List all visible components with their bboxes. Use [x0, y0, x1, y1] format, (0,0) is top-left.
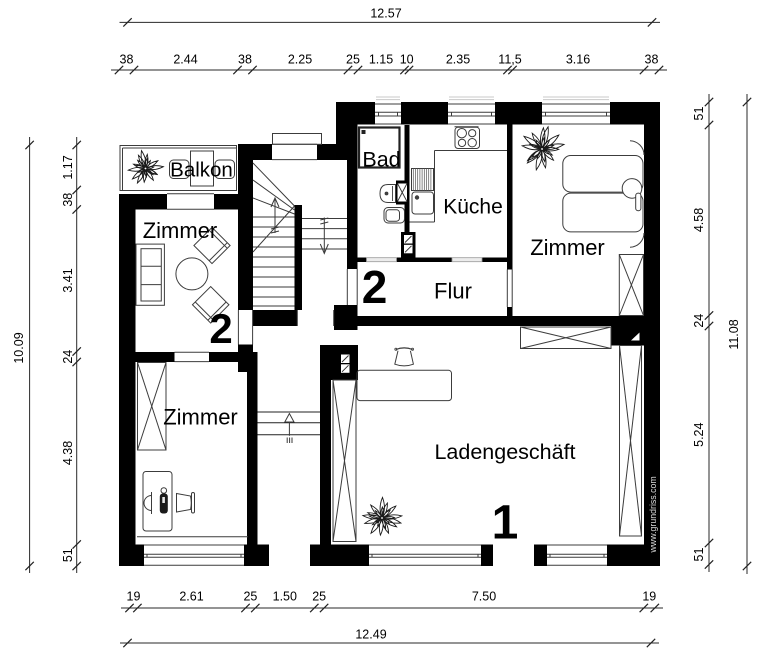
svg-text:11,5: 11,5 — [498, 53, 521, 67]
svg-text:2: 2 — [209, 305, 232, 352]
svg-text:51: 51 — [692, 548, 706, 562]
svg-text:2.61: 2.61 — [179, 590, 203, 604]
svg-text:25: 25 — [346, 53, 360, 67]
svg-text:10: 10 — [400, 53, 414, 67]
svg-text:10.09: 10.09 — [12, 332, 26, 363]
svg-text:2.35: 2.35 — [446, 53, 470, 67]
svg-text:25: 25 — [312, 590, 326, 604]
svg-text:1.15: 1.15 — [369, 53, 393, 67]
svg-text:2.44: 2.44 — [173, 53, 197, 67]
svg-text:12.49: 12.49 — [355, 628, 386, 642]
svg-text:38: 38 — [238, 53, 252, 67]
svg-text:Zimmer: Zimmer — [143, 218, 218, 243]
svg-text:19: 19 — [642, 590, 656, 604]
svg-text:19: 19 — [127, 590, 141, 604]
svg-text:11.08: 11.08 — [727, 319, 741, 349]
svg-text:38: 38 — [645, 53, 659, 67]
svg-text:51: 51 — [61, 548, 75, 562]
svg-text:24: 24 — [61, 350, 75, 364]
svg-text:www.grundriss.com: www.grundriss.com — [648, 476, 658, 553]
svg-text:1.17: 1.17 — [61, 155, 75, 179]
svg-text:1.50: 1.50 — [273, 590, 297, 604]
svg-text:2: 2 — [362, 261, 388, 313]
svg-text:Balkon: Balkon — [170, 159, 233, 182]
svg-text:Bad: Bad — [362, 148, 400, 172]
svg-text:7.50: 7.50 — [472, 590, 496, 604]
svg-text:51: 51 — [692, 107, 706, 121]
svg-text:3.16: 3.16 — [566, 53, 590, 67]
svg-text:Zimmer: Zimmer — [530, 235, 605, 260]
svg-text:4.38: 4.38 — [61, 441, 75, 465]
svg-text:3.41: 3.41 — [61, 268, 75, 292]
svg-text:1: 1 — [492, 497, 519, 550]
svg-text:Ladengeschäft: Ladengeschäft — [434, 440, 575, 464]
svg-text:5.24: 5.24 — [692, 422, 706, 446]
svg-text:38: 38 — [61, 193, 75, 207]
svg-text:12.57: 12.57 — [370, 7, 401, 21]
svg-text:Zimmer: Zimmer — [163, 405, 238, 430]
svg-text:24: 24 — [692, 314, 706, 328]
svg-text:25: 25 — [243, 590, 257, 604]
svg-text:38: 38 — [120, 53, 134, 67]
svg-text:Flur: Flur — [434, 279, 472, 304]
svg-text:4.58: 4.58 — [692, 208, 706, 232]
svg-text:Küche: Küche — [443, 196, 503, 219]
svg-text:2.25: 2.25 — [288, 53, 312, 67]
